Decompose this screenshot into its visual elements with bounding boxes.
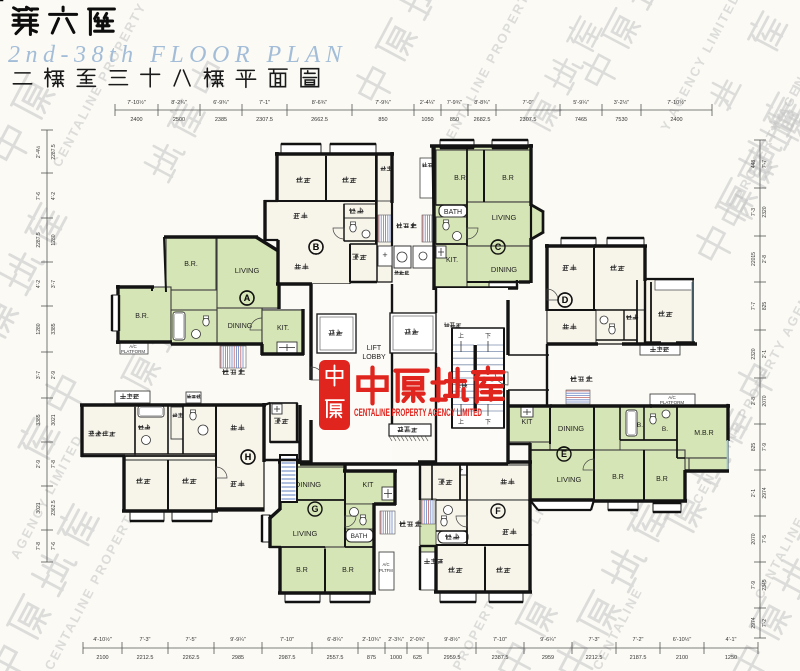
svg-text:LIVING: LIVING <box>557 475 582 484</box>
svg-text:2'-10¾": 2'-10¾" <box>362 637 381 643</box>
svg-text:上: 上 <box>458 418 464 426</box>
svg-text:DINING: DINING <box>228 323 253 330</box>
svg-text:2'-1: 2'-1 <box>762 350 768 358</box>
svg-text:6'-10½": 6'-10½" <box>673 636 692 643</box>
svg-text:7'-0": 7'-0" <box>523 100 534 106</box>
svg-text:7'-9: 7'-9 <box>762 443 768 451</box>
svg-text:8'-2¾": 8'-2¾" <box>171 100 187 106</box>
svg-text:7'-6: 7'-6 <box>36 192 42 200</box>
svg-text:2'-4½: 2'-4½ <box>35 145 42 158</box>
svg-text:4'-2: 4'-2 <box>36 280 42 288</box>
svg-text:2070: 2070 <box>751 533 757 544</box>
svg-text:1050: 1050 <box>421 117 433 123</box>
svg-text:上: 上 <box>458 332 464 340</box>
svg-text:7'-2": 7'-2" <box>633 637 644 643</box>
svg-text:1280: 1280 <box>51 234 57 245</box>
svg-text:850: 850 <box>450 117 459 123</box>
svg-text:2212.5: 2212.5 <box>586 655 603 661</box>
svg-text:7'-10½": 7'-10½" <box>667 99 686 106</box>
svg-text:7'-3: 7'-3 <box>751 208 757 216</box>
svg-text:7'-10": 7'-10" <box>493 637 507 643</box>
svg-text:2682.5: 2682.5 <box>474 117 491 123</box>
svg-text:7530: 7530 <box>615 117 627 123</box>
svg-text:2959.5: 2959.5 <box>444 655 461 661</box>
svg-text:LIVING: LIVING <box>235 266 260 275</box>
svg-text:B: B <box>313 242 320 252</box>
svg-text:6'-9¾": 6'-9¾" <box>213 100 229 106</box>
svg-text:7'-10½": 7'-10½" <box>127 99 146 106</box>
svg-text:B.R.: B.R. <box>184 261 198 268</box>
svg-text:875: 875 <box>367 655 376 661</box>
svg-text:2070: 2070 <box>762 395 768 406</box>
svg-text:2985: 2985 <box>232 655 244 661</box>
svg-text:5'-9¼": 5'-9¼" <box>573 100 589 106</box>
svg-text:7'-8: 7'-8 <box>36 542 42 550</box>
svg-text:3021: 3021 <box>36 502 42 513</box>
svg-text:2362.5: 2362.5 <box>51 500 57 516</box>
svg-text:2'-4¼": 2'-4¼" <box>420 100 436 106</box>
svg-text:825: 825 <box>751 443 757 452</box>
svg-text:2387.5: 2387.5 <box>492 655 509 661</box>
svg-text:B.R.: B.R. <box>135 313 149 320</box>
svg-text:DINING: DINING <box>295 480 321 489</box>
svg-text:6'-8¼": 6'-8¼" <box>327 637 343 643</box>
svg-text:H: H <box>245 452 252 462</box>
svg-text:KIT.: KIT. <box>277 325 289 332</box>
svg-text:2nd-38th FLOOR PLAN: 2nd-38th FLOOR PLAN <box>8 42 347 68</box>
svg-text:KIT: KIT <box>363 482 375 489</box>
svg-text:DINING: DINING <box>558 424 584 433</box>
svg-text:2662.5: 2662.5 <box>311 117 328 123</box>
svg-text:BATH: BATH <box>444 209 462 216</box>
svg-text:2100: 2100 <box>96 655 108 661</box>
svg-text:7'-9: 7'-9 <box>751 581 757 589</box>
svg-text:3'-7: 3'-7 <box>36 371 42 379</box>
svg-text:7465: 7465 <box>575 117 587 123</box>
svg-text:9'-9¼": 9'-9¼" <box>230 637 246 643</box>
svg-text:2'-9: 2'-9 <box>51 371 57 379</box>
svg-text:LIVING: LIVING <box>293 529 318 538</box>
svg-text:PLATFORM: PLATFORM <box>660 400 684 405</box>
svg-text:F: F <box>495 506 501 516</box>
svg-text:9'-6¼": 9'-6¼" <box>540 637 556 643</box>
svg-text:7'-6: 7'-6 <box>51 542 57 550</box>
svg-text:1000: 1000 <box>390 655 402 661</box>
svg-text:2100: 2100 <box>676 655 688 661</box>
svg-text:2287.5: 2287.5 <box>36 232 42 248</box>
svg-text:B.R: B.R <box>656 476 668 483</box>
svg-text:3'-7: 3'-7 <box>51 280 57 288</box>
svg-text:LIVING: LIVING <box>492 213 517 222</box>
svg-text:D: D <box>562 295 569 305</box>
svg-text:2212.5: 2212.5 <box>137 655 154 661</box>
svg-text:B.R: B.R <box>296 567 308 574</box>
svg-text:9'-8½": 9'-8½" <box>444 636 460 643</box>
svg-text:2262.5: 2262.5 <box>183 655 200 661</box>
svg-text:7'-2: 7'-2 <box>762 619 768 627</box>
svg-text:2'-0¾": 2'-0¾" <box>410 637 426 643</box>
svg-text:B.R: B.R <box>612 474 624 481</box>
svg-text:850: 850 <box>378 117 387 123</box>
svg-text:2'-9: 2'-9 <box>36 460 42 468</box>
svg-text:DINING: DINING <box>491 265 517 274</box>
svg-text:2'-8: 2'-8 <box>762 255 768 263</box>
svg-text:7'-1": 7'-1" <box>259 100 270 106</box>
svg-text:448: 448 <box>751 160 757 169</box>
svg-text:7'-10": 7'-10" <box>280 637 294 643</box>
svg-text:KIT.: KIT. <box>446 257 458 264</box>
svg-text:7'-7: 7'-7 <box>751 302 757 310</box>
svg-text:7'-9¾": 7'-9¾" <box>375 100 391 106</box>
svg-text:1250: 1250 <box>725 655 737 661</box>
svg-text:825: 825 <box>762 302 768 311</box>
svg-text:2557.5: 2557.5 <box>327 655 344 661</box>
svg-text:B.R: B.R <box>454 175 466 182</box>
svg-text:8'-8¾": 8'-8¾" <box>474 100 490 106</box>
svg-text:E: E <box>561 449 567 459</box>
svg-text:2320: 2320 <box>751 348 757 359</box>
svg-text:下: 下 <box>485 419 491 426</box>
svg-text:B.R: B.R <box>342 567 354 574</box>
svg-text:2345: 2345 <box>762 579 768 590</box>
svg-text:2400: 2400 <box>670 117 682 123</box>
svg-text:3021: 3021 <box>51 414 57 425</box>
svg-text:B.R: B.R <box>502 175 514 182</box>
svg-text:7'-3": 7'-3" <box>589 637 600 643</box>
svg-text:C: C <box>495 242 502 252</box>
svg-text:625: 625 <box>413 655 422 661</box>
svg-text:1280: 1280 <box>36 323 42 334</box>
svg-text:2400: 2400 <box>130 117 142 123</box>
svg-text:PLATFORM: PLATFORM <box>121 349 145 354</box>
svg-text:7'-5: 7'-5 <box>762 535 768 543</box>
svg-text:LOBBY: LOBBY <box>362 354 386 361</box>
svg-text:22015: 22015 <box>751 252 757 266</box>
svg-text:2307.5: 2307.5 <box>520 117 537 123</box>
svg-text:2959: 2959 <box>542 655 554 661</box>
svg-text:LIFT: LIFT <box>367 345 382 352</box>
svg-text:2500: 2500 <box>173 117 185 123</box>
svg-text:CENTALINE PROPERTY AGENCY LIMI: CENTALINE PROPERTY AGENCY LIMITED <box>354 407 482 419</box>
svg-text:7'-8: 7'-8 <box>51 460 57 468</box>
svg-text:2320: 2320 <box>762 206 768 217</box>
svg-text:下: 下 <box>485 333 491 340</box>
svg-text:BATH: BATH <box>351 533 368 540</box>
svg-text:3385: 3385 <box>36 414 42 425</box>
svg-text:7'-5": 7'-5" <box>186 637 197 643</box>
svg-text:2974: 2974 <box>762 487 768 498</box>
svg-text:4'-10½": 4'-10½" <box>93 636 112 643</box>
svg-text:8'-6¾": 8'-6¾" <box>312 100 328 106</box>
svg-text:M.B.R: M.B.R <box>694 430 713 437</box>
svg-text:PLTFM: PLTFM <box>379 568 393 573</box>
svg-text:KIT: KIT <box>522 419 534 426</box>
svg-text:A: A <box>244 293 251 303</box>
svg-text:2287.5: 2287.5 <box>51 144 57 160</box>
svg-text:G: G <box>311 504 318 514</box>
svg-text:2385: 2385 <box>215 117 227 123</box>
svg-text:A/C: A/C <box>383 562 390 567</box>
svg-text:7'-9¾": 7'-9¾" <box>447 100 463 106</box>
svg-text:2'-8: 2'-8 <box>751 397 757 405</box>
svg-text:7'-7: 7'-7 <box>762 160 768 168</box>
svg-text:2'-1: 2'-1 <box>751 489 757 497</box>
svg-text:2307.5: 2307.5 <box>256 117 273 123</box>
svg-text:4'-2: 4'-2 <box>51 192 57 200</box>
svg-text:B.: B. <box>637 422 643 429</box>
svg-text:7'-3": 7'-3" <box>140 637 151 643</box>
svg-text:B.: B. <box>662 426 668 433</box>
svg-text:+: + <box>382 250 387 260</box>
svg-text:2974: 2974 <box>751 617 757 628</box>
svg-text:4'-1": 4'-1" <box>726 637 737 643</box>
svg-text:2187.5: 2187.5 <box>630 655 647 661</box>
svg-text:3'-2½": 3'-2½" <box>614 99 630 106</box>
svg-text:2987.5: 2987.5 <box>279 655 296 661</box>
svg-text:2'-3¾": 2'-3¾" <box>388 637 404 643</box>
svg-text:3385: 3385 <box>51 323 57 334</box>
